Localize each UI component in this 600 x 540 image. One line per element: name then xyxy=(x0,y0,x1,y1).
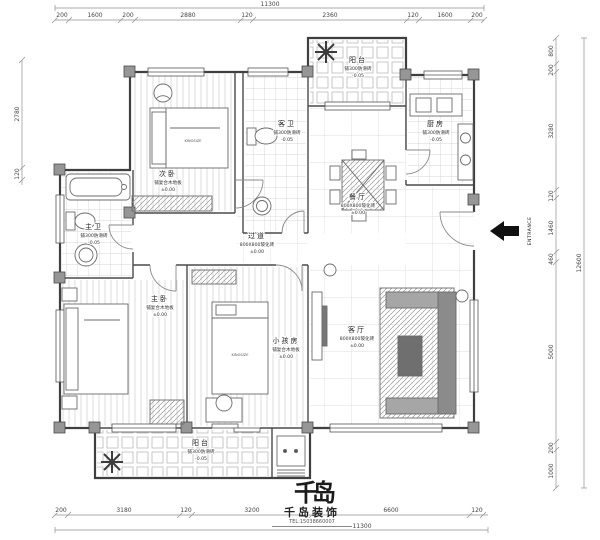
dim-right-7: 200 xyxy=(548,442,555,454)
basin-master-icon xyxy=(75,244,97,266)
bed-double-icon xyxy=(150,108,228,168)
svg-text:铺300防滑砖: 铺300防滑砖 xyxy=(344,65,372,72)
dim-bottom-5: 120 xyxy=(471,507,483,514)
dim-bottom-0: 200 xyxy=(55,507,67,514)
window-bath-north xyxy=(248,68,288,76)
bed2-size-label: KINGSIZE xyxy=(185,139,203,143)
svg-text:次卧: 次卧 xyxy=(159,169,177,178)
svg-text:800X800玻化砖: 800X800玻化砖 xyxy=(240,241,275,248)
svg-text:客厅: 客厅 xyxy=(348,325,366,334)
svg-text:客卫: 客卫 xyxy=(278,119,296,128)
kids-bed-size-label: KINGSIZE xyxy=(232,353,250,357)
dim-right-4: 1460 xyxy=(548,220,555,235)
basin-guest-icon xyxy=(253,197,271,215)
svg-text:±0.00: ±0.00 xyxy=(161,187,175,193)
window-living-south xyxy=(330,424,442,432)
svg-text:厨房: 厨房 xyxy=(427,119,445,128)
dim-right-6: 5000 xyxy=(548,344,555,359)
window-master-bath-west xyxy=(56,195,64,243)
sofa-set-icon xyxy=(380,288,456,418)
dim-bottom-1: 3180 xyxy=(116,507,131,514)
dim-right-5: 460 xyxy=(548,253,555,265)
svg-text:800X800玻化砖: 800X800玻化砖 xyxy=(340,335,375,342)
company-logo: 千岛 千岛装饰 TEL:15038660007 xyxy=(272,481,352,527)
window-bedroom2-north xyxy=(148,68,204,76)
dim-top-7: 1600 xyxy=(437,12,452,19)
dim-top-6: 120 xyxy=(407,12,419,19)
svg-text:铺复合木地板: 铺复合木地板 xyxy=(272,346,300,353)
dim-bottom-4: 6600 xyxy=(383,507,398,514)
bed-master-icon xyxy=(62,288,128,409)
dim-top-4: 120 xyxy=(241,12,253,19)
pendant-icon xyxy=(324,264,336,276)
logo-phone: TEL:15038660007 xyxy=(272,520,352,527)
wardrobe-kids xyxy=(192,270,236,284)
dim-top-2: 200 xyxy=(122,12,134,19)
svg-text:主卫: 主卫 xyxy=(85,222,103,231)
dim-top-8: 200 xyxy=(471,12,483,19)
svg-text:阳台: 阳台 xyxy=(192,438,210,447)
dim-top-overall: 11300 xyxy=(260,1,279,8)
floor-foyer xyxy=(406,187,474,265)
dim-bottom-overall: 11300 xyxy=(352,523,371,530)
logo-mark: 千岛 xyxy=(272,481,352,505)
dim-left-0: 2780 xyxy=(14,106,21,121)
floorplan-drawing: 阳台 铺300防滑砖 -0.05 厨房 铺300防滑砖 -0.05 餐厅 800… xyxy=(0,0,600,540)
dim-top-1: 1600 xyxy=(87,12,102,19)
svg-text:-0.05: -0.05 xyxy=(352,73,364,79)
svg-text:小孩房: 小孩房 xyxy=(273,336,300,345)
dim-top-5: 2360 xyxy=(322,12,337,19)
dim-right-2: 3280 xyxy=(548,123,555,138)
svg-text:±0.00: ±0.00 xyxy=(153,312,167,318)
dim-bottom-3: 3200 xyxy=(244,507,259,514)
dim-right-8: 1000 xyxy=(548,463,555,478)
svg-text:餐厅: 餐厅 xyxy=(349,192,367,201)
svg-text:过道: 过道 xyxy=(248,231,266,240)
svg-text:铺复合木地板: 铺复合木地板 xyxy=(146,304,174,311)
dim-left-1: 120 xyxy=(14,168,21,180)
floor-balcony-south xyxy=(97,430,270,476)
window-master-bed-south xyxy=(112,424,176,432)
cooktop-icon xyxy=(458,124,473,180)
svg-text:-0.05: -0.05 xyxy=(281,137,293,143)
desk-chair-kids-icon xyxy=(206,395,242,422)
floor-lamp-icon xyxy=(456,290,468,302)
svg-text:-0.05: -0.05 xyxy=(195,456,207,462)
svg-text:铺300防滑砖: 铺300防滑砖 xyxy=(187,448,215,455)
svg-text:800X800玻化砖: 800X800玻化砖 xyxy=(341,202,376,209)
dresser-master xyxy=(150,400,184,424)
wardrobe-bedroom2 xyxy=(132,196,212,211)
floorplan-sheet: 阳台 铺300防滑砖 -0.05 厨房 铺300防滑砖 -0.05 餐厅 800… xyxy=(0,0,600,540)
svg-text:±0.00: ±0.00 xyxy=(351,210,365,216)
plant-icon-north xyxy=(315,41,337,63)
window-master-bed-west xyxy=(56,310,64,382)
dim-right-overall: 12600 xyxy=(576,253,583,272)
svg-text:铺300防滑砖: 铺300防滑砖 xyxy=(273,129,301,136)
svg-text:±0.00: ±0.00 xyxy=(250,249,264,255)
dim-bottom-2: 120 xyxy=(180,507,192,514)
logo-company-name: 千岛装饰 xyxy=(272,507,352,518)
bed-kids-icon xyxy=(212,302,268,394)
plant-icon-south xyxy=(101,451,123,473)
entrance-marker: ENTRANCE xyxy=(490,217,533,246)
svg-text:铺300防滑砖: 铺300防滑砖 xyxy=(422,129,450,136)
svg-text:±0.00: ±0.00 xyxy=(279,354,293,360)
bathtub-icon xyxy=(66,174,130,200)
kitchen-counter-sink xyxy=(410,94,462,116)
entrance-arrow-icon xyxy=(490,221,519,241)
armchair-icon xyxy=(154,84,172,102)
svg-text:阳台: 阳台 xyxy=(349,55,367,64)
window-balcony-dining xyxy=(325,102,390,110)
dim-top-3: 2880 xyxy=(180,12,195,19)
svg-text:主卧: 主卧 xyxy=(151,294,169,303)
svg-text:±0.00: ±0.00 xyxy=(350,343,364,349)
dim-right-0: 800 xyxy=(548,45,555,57)
svg-text:铺复合木地板: 铺复合木地板 xyxy=(154,179,182,186)
window-kitchen-north xyxy=(424,71,462,79)
svg-text:铺300防滑砖: 铺300防滑砖 xyxy=(80,232,108,239)
dim-top-0: 200 xyxy=(56,12,68,19)
washer-icon xyxy=(277,436,305,476)
window-living-east xyxy=(470,300,478,392)
dim-right-1: 200 xyxy=(548,64,555,76)
entrance-label: ENTRANCE xyxy=(527,217,533,246)
svg-text:-0.05: -0.05 xyxy=(88,240,100,246)
dim-right-3: 120 xyxy=(548,190,555,202)
svg-text:-0.05: -0.05 xyxy=(430,137,442,143)
